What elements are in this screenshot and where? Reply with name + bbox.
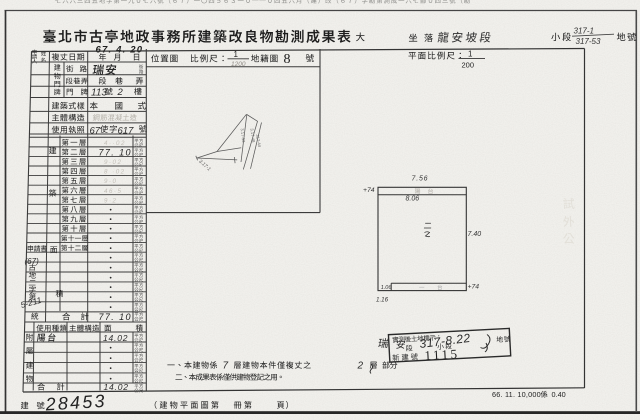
svg-text:317-53: 317-53 xyxy=(576,37,601,46)
svg-text:1.16: 1.16 xyxy=(376,297,389,304)
svg-text:46·5: 46·5 xyxy=(104,188,122,195)
svg-text:14.02: 14.02 xyxy=(104,382,129,392)
svg-text:+74: +74 xyxy=(363,187,375,194)
svg-text:77. 10: 77. 10 xyxy=(99,147,132,157)
svg-text:0.40: 0.40 xyxy=(552,390,566,399)
svg-text:8.06: 8.06 xyxy=(406,196,420,203)
svg-text:8 ·02: 8 ·02 xyxy=(104,169,126,176)
svg-text:8: 8 xyxy=(284,52,291,67)
svg-text:200: 200 xyxy=(462,61,475,70)
svg-text:77. 10: 77. 10 xyxy=(99,312,132,322)
svg-text:9·0: 9·0 xyxy=(104,178,117,185)
svg-text:67. 4. 20: 67. 4. 20 xyxy=(96,44,144,55)
svg-text:4··02: 4··02 xyxy=(104,140,126,147)
svg-text:1: 1 xyxy=(234,50,239,59)
svg-text:113: 113 xyxy=(91,87,107,98)
svg-text:67: 67 xyxy=(90,125,101,136)
svg-text:9·02: 9·02 xyxy=(104,159,122,166)
svg-text:1200: 1200 xyxy=(231,61,246,68)
svg-text:617: 617 xyxy=(118,125,135,136)
svg-text:1: 1 xyxy=(468,50,473,59)
svg-text:317-1: 317-1 xyxy=(574,27,594,36)
svg-text:28453: 28453 xyxy=(44,391,107,415)
svg-text:14.02: 14.02 xyxy=(103,333,128,343)
svg-text:7: 7 xyxy=(223,360,229,371)
svg-text:66. 11. 10,000: 66. 11. 10,000 xyxy=(492,390,541,399)
svg-text:7.56: 7.56 xyxy=(412,176,429,183)
svg-text:2: 2 xyxy=(117,87,124,98)
svg-text:+74: +74 xyxy=(468,284,480,291)
svg-text:(67): (67) xyxy=(25,257,40,266)
svg-text:2: 2 xyxy=(357,360,364,371)
svg-text:1.06: 1.06 xyxy=(381,285,393,291)
svg-text:7.40: 7.40 xyxy=(468,231,482,238)
svg-text:9·2: 9·2 xyxy=(104,197,117,204)
